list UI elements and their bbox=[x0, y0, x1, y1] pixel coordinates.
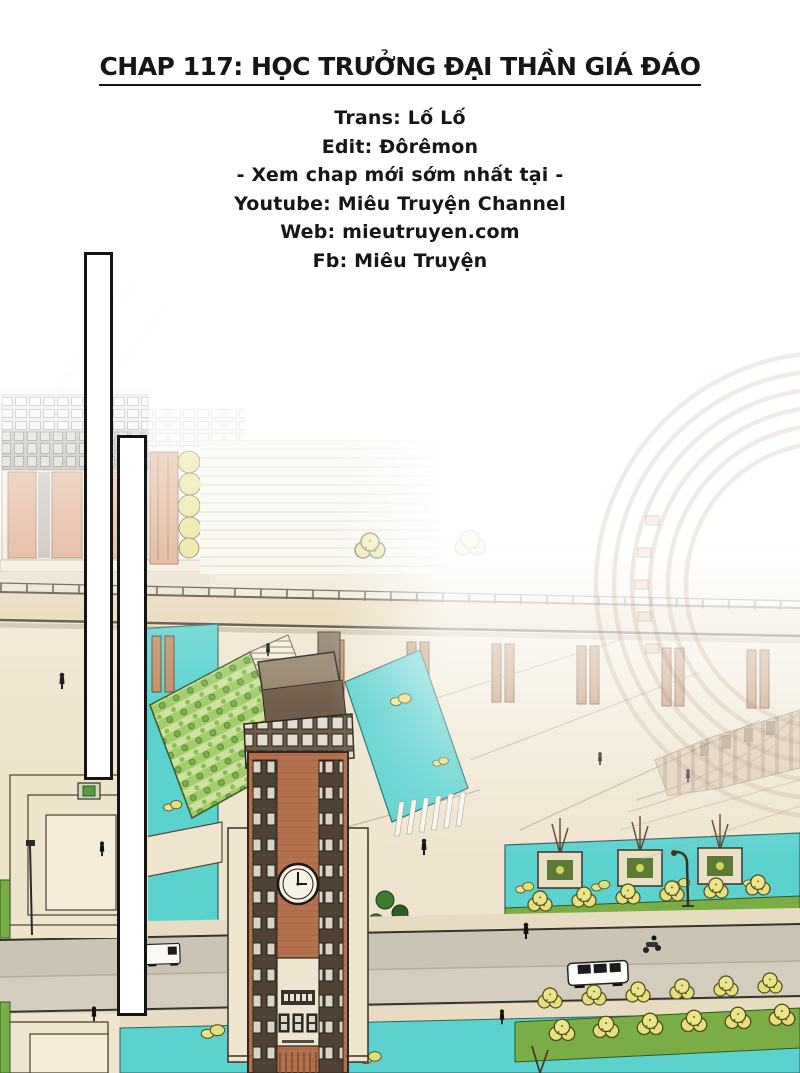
credits-block: Trans: Lố Lố Edit: Đôrêmon - Xem chap mớ… bbox=[0, 104, 800, 276]
credit-line-youtube: Youtube: Miêu Truyện Channel bbox=[0, 190, 800, 219]
comic-page: CHAP 117: HỌC TRƯỞNG ĐẠI THẦN GIÁ ĐÁO Tr… bbox=[0, 0, 800, 1073]
chapter-title: CHAP 117: HỌC TRƯỞNG ĐẠI THẦN GIÁ ĐÁO bbox=[99, 52, 700, 86]
credit-line-trans: Trans: Lố Lố bbox=[0, 104, 800, 133]
tower-window-column-left bbox=[253, 760, 277, 1073]
vertical-speech-panel-left bbox=[84, 252, 113, 780]
tower-base-colonnade bbox=[280, 1052, 316, 1073]
tower-clock bbox=[278, 864, 318, 904]
credit-line-fb: Fb: Miêu Truyện bbox=[0, 247, 800, 276]
credit-line-note: - Xem chap mới sớm nhất tại - bbox=[0, 161, 800, 190]
white-truck bbox=[144, 943, 181, 966]
header: CHAP 117: HỌC TRƯỞNG ĐẠI THẦN GIÁ ĐÁO Tr… bbox=[0, 0, 800, 276]
white-car bbox=[567, 960, 628, 988]
credit-line-edit: Edit: Đôrêmon bbox=[0, 133, 800, 162]
tower-lower-windows bbox=[279, 1014, 317, 1032]
credit-line-web: Web: mieutruyen.com bbox=[0, 218, 800, 247]
tower-sign bbox=[281, 990, 315, 1005]
small-planter bbox=[78, 783, 100, 799]
vertical-speech-panel-right bbox=[117, 435, 147, 1016]
